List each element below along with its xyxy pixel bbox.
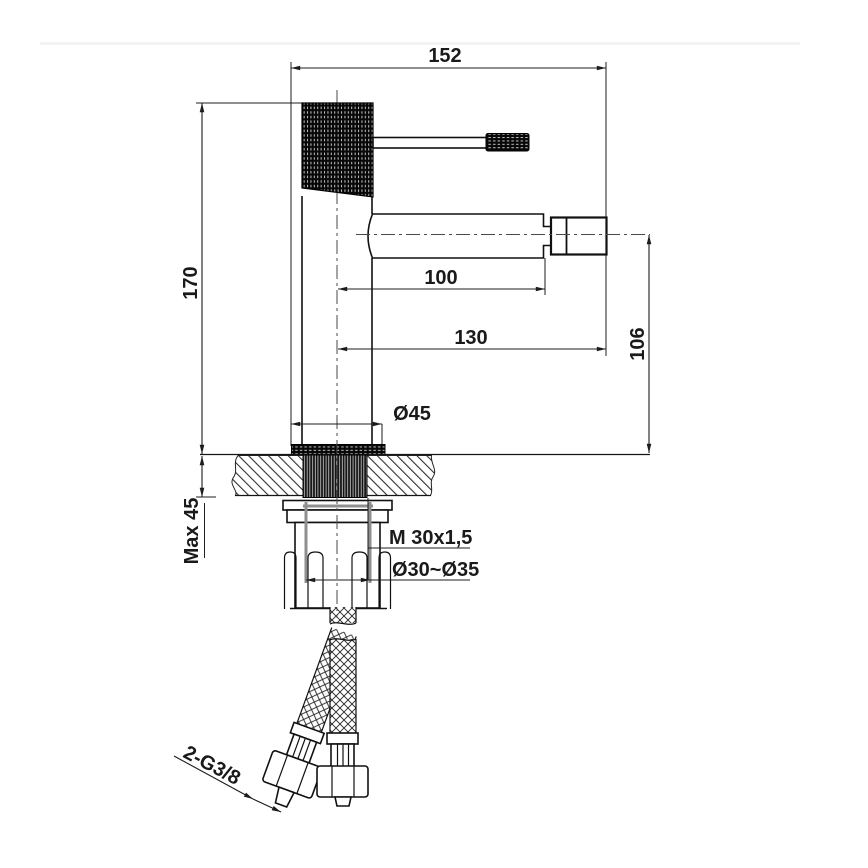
dim-label-hole-diameter: Ø30~Ø35 bbox=[392, 559, 479, 581]
base-flange bbox=[292, 445, 386, 456]
lever-bar bbox=[373, 138, 487, 149]
faucet-technical-drawing: 152 170 Max 45 100 130 106 Ø45 M 30x1,5 … bbox=[0, 0, 868, 868]
dim-label-mounting-thread: M 30x1,5 bbox=[389, 527, 472, 549]
countertop-section bbox=[200, 455, 650, 496]
dim-label-base-diameter: Ø45 bbox=[393, 403, 431, 425]
dim-label-supply-connection: 2-G3/8 bbox=[180, 742, 244, 790]
dim-label-spout-total-reach: 130 bbox=[454, 327, 487, 349]
dim-label-spout-height: 106 bbox=[627, 327, 649, 360]
handle-assembly bbox=[302, 103, 529, 197]
countertop-hatch-right bbox=[367, 456, 435, 496]
dim-label-overall-height: 170 bbox=[180, 266, 202, 299]
lever-knurled-grip bbox=[486, 134, 529, 152]
dimension-106: 106 bbox=[627, 235, 649, 453]
dimension-152: 152 bbox=[291, 45, 606, 68]
countertop-hatch-left bbox=[232, 456, 303, 496]
dimension-max45: Max 45 bbox=[181, 456, 205, 564]
knurled-handle-body bbox=[302, 103, 373, 197]
dimension-170: 170 bbox=[180, 103, 202, 454]
dim-label-overall-width: 152 bbox=[428, 45, 461, 67]
g38-thread-stub-vertical bbox=[335, 797, 351, 806]
technical-drawing-page: 152 170 Max 45 100 130 106 Ø45 M 30x1,5 … bbox=[0, 0, 868, 868]
extension-lines bbox=[196, 62, 606, 497]
dim-label-max-thickness: Max 45 bbox=[181, 498, 203, 565]
hose-collar-vertical bbox=[327, 733, 358, 744]
dimension-130: 130 bbox=[338, 327, 606, 349]
page-artifact-band bbox=[40, 42, 800, 45]
aerator bbox=[551, 218, 607, 255]
threaded-tailpiece bbox=[303, 455, 367, 498]
dim-label-spout-reach: 100 bbox=[424, 267, 457, 289]
hex-nut-vertical bbox=[317, 766, 368, 797]
